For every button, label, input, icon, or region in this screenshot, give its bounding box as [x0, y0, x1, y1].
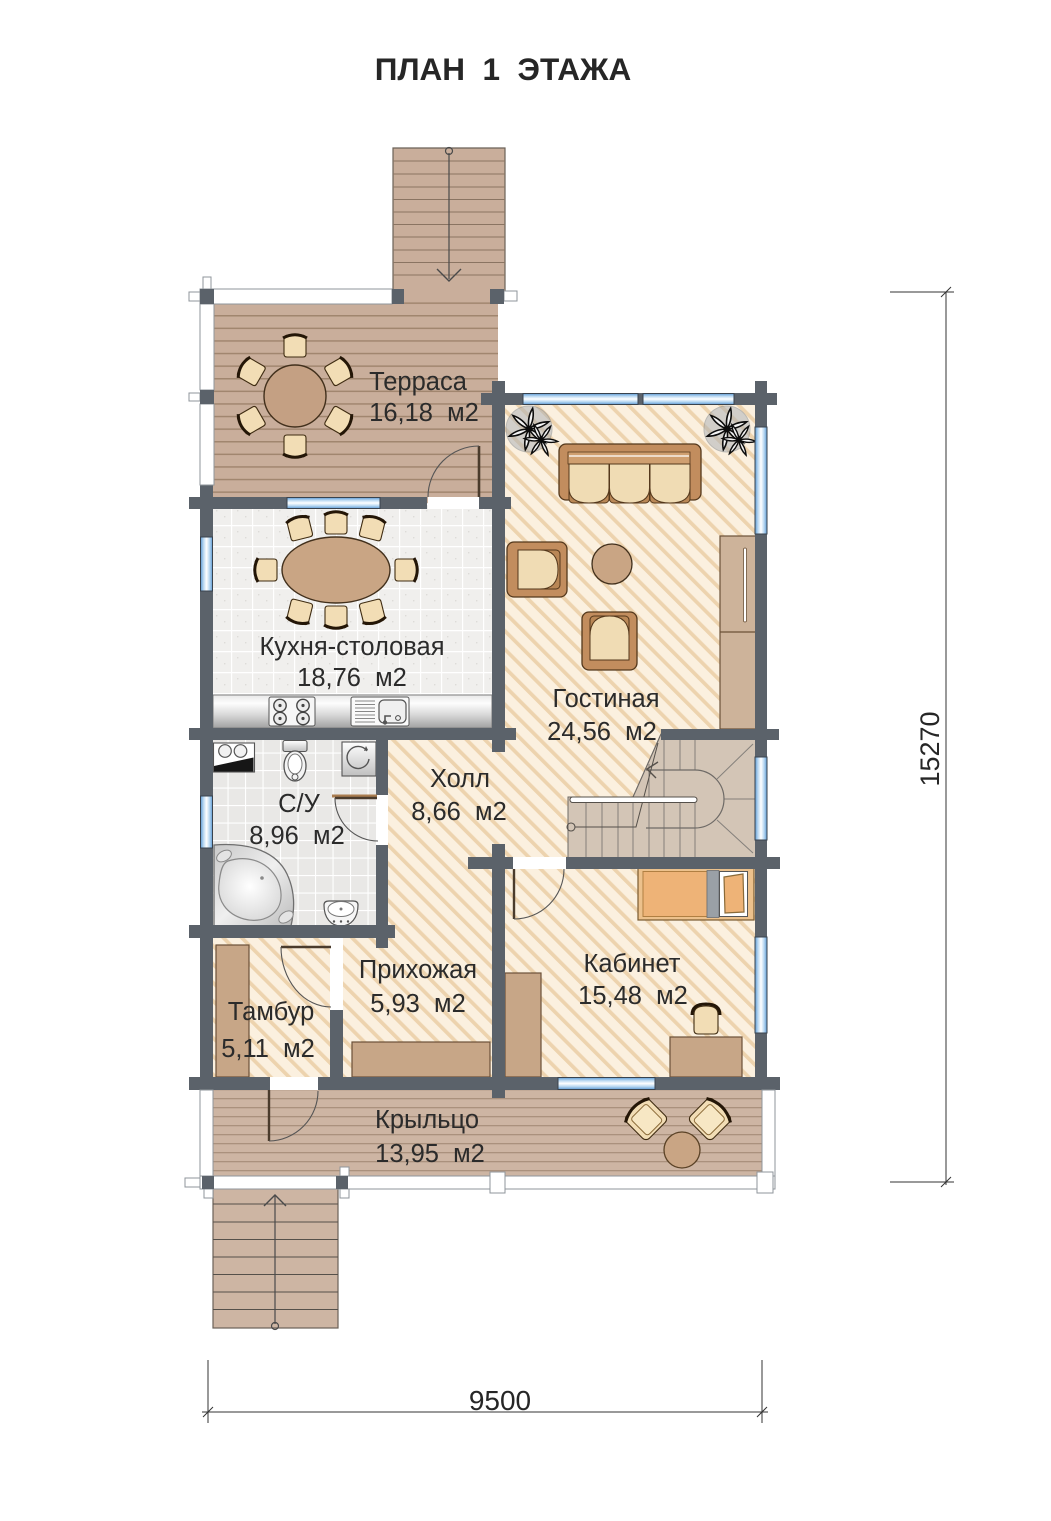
svg-text:Кухня-столовая: Кухня-столовая	[259, 633, 444, 661]
svg-text:18,76 м2: 18,76 м2	[297, 664, 407, 692]
svg-text:Гостиная: Гостиная	[552, 685, 659, 713]
svg-text:5,11 м2: 5,11 м2	[221, 1035, 315, 1063]
svg-text:С/У: С/У	[278, 790, 321, 818]
svg-text:15,48 м2: 15,48 м2	[578, 982, 688, 1010]
svg-text:Крыльцо: Крыльцо	[375, 1106, 479, 1134]
svg-text:5,93 м2: 5,93 м2	[370, 990, 466, 1018]
svg-text:Прихожая: Прихожая	[359, 956, 477, 984]
svg-text:Холл: Холл	[430, 765, 490, 793]
svg-text:8,66 м2: 8,66 м2	[411, 798, 507, 826]
svg-text:9500: 9500	[469, 1385, 531, 1416]
svg-text:15270: 15270	[915, 711, 945, 786]
svg-text:8,96 м2: 8,96 м2	[249, 822, 345, 850]
svg-text:13,95 м2: 13,95 м2	[375, 1140, 485, 1168]
svg-text:Тамбур: Тамбур	[228, 998, 315, 1026]
svg-text:24,56 м2: 24,56 м2	[547, 718, 657, 746]
svg-text:16,18 м2: 16,18 м2	[369, 399, 479, 427]
svg-text:ПЛАН 1 ЭТАЖА: ПЛАН 1 ЭТАЖА	[375, 51, 631, 87]
svg-text:Кабинет: Кабинет	[584, 950, 681, 978]
svg-text:Терраса: Терраса	[369, 368, 468, 396]
